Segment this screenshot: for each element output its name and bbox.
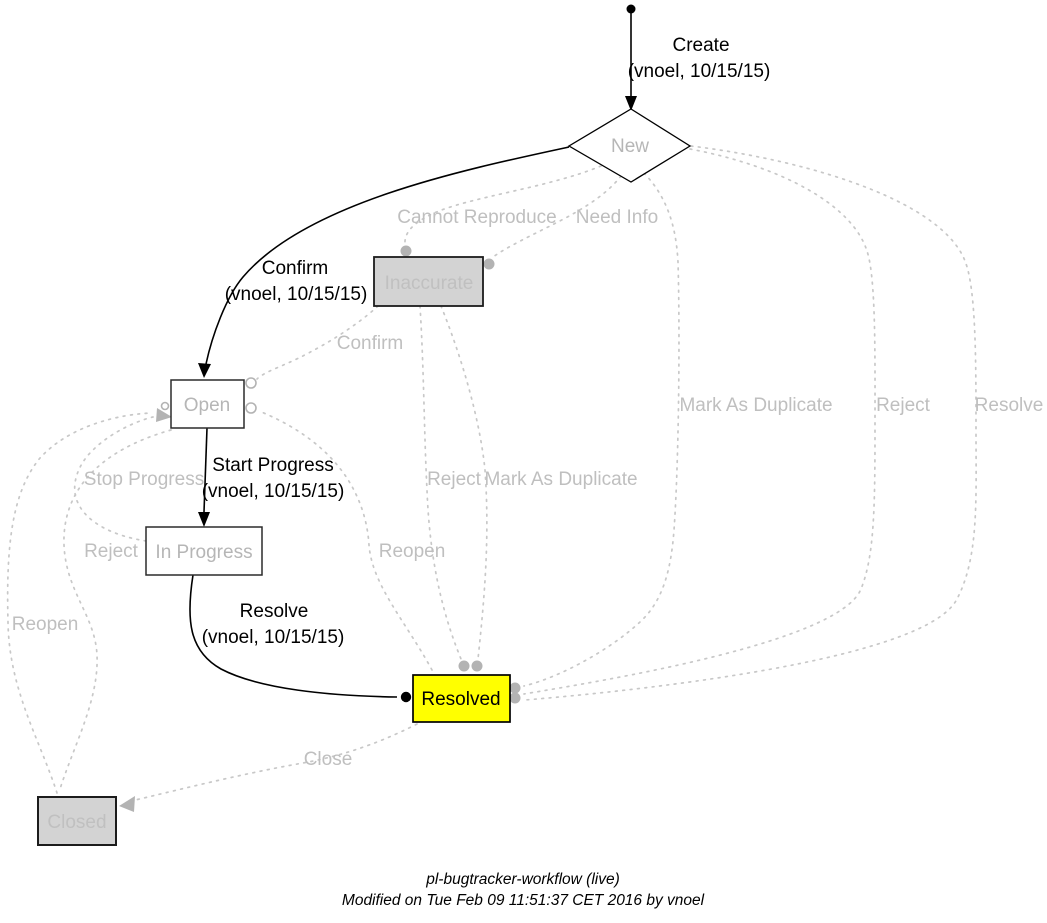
cannot-reproduce-dot-icon [401,246,412,257]
label-need-info: Need Info [576,207,658,228]
state-label-open: Open [184,395,230,416]
label-create-by: (vnoel, 10/15/15) [628,61,771,82]
edge-close [131,724,417,801]
label-confirm-taken: Confirm [262,258,329,279]
state-node-resolved: Resolved [413,675,510,722]
label-reopen-from-resolved: Reopen [379,541,446,562]
state-node-closed: Closed [38,797,116,845]
state-node-inaccurate: Inaccurate [374,257,483,306]
edge-resolve-from-new [525,146,976,700]
edge-confirm-taken [206,147,569,364]
resolved-top-dot-1-icon [459,661,470,672]
need-info-dot-icon [484,259,495,270]
label-mark-as-duplicate-from-inaccurate: Mark As Duplicate [484,469,637,490]
state-node-in-progress: In Progress [146,527,262,575]
state-label-new: New [611,136,649,157]
state-label-inaccurate: Inaccurate [385,273,474,294]
label-reject-to-closed: Reject [84,541,139,562]
state-label-resolved: Resolved [421,689,500,710]
label-start-progress-taken: Start Progress [212,455,333,476]
resolved-right-dot-1-icon [510,683,521,694]
footer-modified: Modified on Tue Feb 09 11:51:37 CET 2016… [342,892,705,909]
resolved-top-dot-2-icon [472,661,483,672]
confirm-arrowhead-icon [198,363,211,378]
open-odot-1-icon [246,378,256,388]
label-reject-from-new: Reject [876,395,931,416]
label-close: Close [304,749,353,770]
label-start-progress-taken-by: (vnoel, 10/15/15) [202,481,345,502]
edge-mark-as-duplicate-from-new [524,173,679,686]
initial-state-dot [627,5,636,14]
label-create: Create [672,35,729,56]
label-resolve-taken-by: (vnoel, 10/15/15) [202,627,345,648]
state-label-in-progress: In Progress [155,542,252,563]
resolved-right-dot-2-icon [510,693,521,704]
label-confirm-taken-by: (vnoel, 10/15/15) [225,284,368,305]
open-odot-2-icon [246,403,256,413]
label-resolve-taken: Resolve [240,601,309,622]
label-confirm-from-inaccurate: Confirm [337,333,404,354]
resolve-dot-arrowhead-icon [401,692,411,702]
state-node-open: Open [171,380,244,428]
edge-reject-from-new [524,149,875,694]
label-mark-as-duplicate-from-new: Mark As Duplicate [679,395,832,416]
workflow-svg: New Inaccurate Open In Progress Resolved… [0,0,1047,923]
label-resolve-from-new: Resolve [975,395,1044,416]
footer-title: pl-bugtracker-workflow (live) [425,871,620,888]
label-reject-from-inaccurate: Reject [427,469,482,490]
label-stop-progress: Stop Progress [84,469,204,490]
label-reopen-from-closed: Reopen [12,614,79,635]
label-cannot-reproduce: Cannot Reproduce [397,207,557,228]
workflow-diagram: New Inaccurate Open In Progress Resolved… [0,0,1047,923]
close-arrowhead-icon [119,796,135,812]
state-label-closed: Closed [47,812,106,833]
open-left-curl-icon [162,403,169,410]
edge-cannot-reproduce [405,166,601,245]
start-progress-arrowhead-icon [198,512,210,527]
